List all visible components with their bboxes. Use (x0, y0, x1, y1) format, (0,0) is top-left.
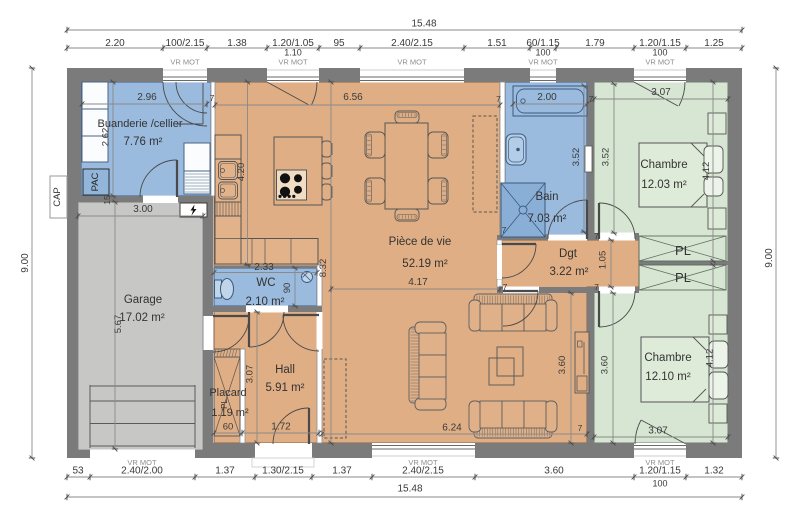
svg-text:60: 60 (223, 422, 234, 433)
svg-text:1.72: 1.72 (271, 422, 291, 433)
svg-text:VR MOT: VR MOT (397, 58, 427, 67)
svg-text:3.52: 3.52 (601, 148, 612, 167)
svg-text:7: 7 (210, 93, 215, 103)
svg-text:VR MOT: VR MOT (408, 458, 438, 467)
svg-text:2.40/2.00: 2.40/2.00 (121, 466, 163, 477)
svg-text:7: 7 (578, 423, 583, 433)
svg-text:1.20/1.15: 1.20/1.15 (639, 466, 681, 477)
svg-text:Dgt: Dgt (559, 248, 578, 260)
svg-text:VR MOT: VR MOT (170, 58, 200, 67)
svg-text:9.00: 9.00 (764, 248, 775, 268)
svg-text:3.00: 3.00 (133, 204, 153, 215)
svg-text:VR MOT: VR MOT (278, 58, 308, 67)
svg-text:100/2.15: 100/2.15 (166, 38, 205, 49)
svg-text:3.52: 3.52 (571, 148, 582, 167)
svg-text:1.19 m²: 1.19 m² (211, 407, 249, 419)
svg-text:6.24: 6.24 (442, 423, 462, 434)
svg-text:6.56: 6.56 (343, 92, 363, 103)
svg-text:1.38: 1.38 (227, 38, 247, 49)
svg-text:VR MOT: VR MOT (127, 458, 157, 467)
svg-text:3.60: 3.60 (600, 356, 611, 375)
svg-text:Hall: Hall (275, 364, 295, 376)
svg-text:VR MOT: VR MOT (528, 58, 558, 67)
svg-text:2.62: 2.62 (101, 128, 112, 147)
svg-text:3.07: 3.07 (651, 87, 671, 98)
svg-text:7: 7 (496, 94, 501, 104)
svg-text:Placard: Placard (209, 387, 246, 399)
svg-text:1.51: 1.51 (487, 38, 507, 49)
svg-text:15: 15 (102, 195, 112, 205)
svg-text:PL: PL (675, 243, 691, 258)
svg-text:1.32: 1.32 (704, 466, 724, 477)
svg-text:52.19 m²: 52.19 m² (402, 258, 448, 270)
svg-text:7: 7 (502, 225, 507, 235)
svg-text:1.05: 1.05 (598, 251, 609, 270)
svg-text:Chambre: Chambre (640, 159, 687, 171)
svg-text:CAP: CAP (52, 187, 63, 207)
svg-text:9.00: 9.00 (20, 253, 31, 273)
svg-text:2.40/2.15: 2.40/2.15 (402, 466, 444, 477)
svg-text:3.60: 3.60 (557, 356, 568, 375)
svg-text:95: 95 (333, 38, 345, 49)
svg-text:17.02 m²: 17.02 m² (119, 312, 165, 324)
svg-text:12.10 m²: 12.10 m² (645, 371, 691, 383)
svg-text:Chambre: Chambre (644, 352, 691, 364)
svg-text:7.03 m²: 7.03 m² (528, 213, 567, 225)
svg-text:100: 100 (652, 479, 667, 489)
svg-text:15.48: 15.48 (411, 19, 436, 30)
svg-text:3.07: 3.07 (648, 426, 668, 437)
svg-text:53: 53 (72, 466, 84, 477)
svg-text:2.20: 2.20 (105, 38, 125, 49)
svg-text:5.91 m²: 5.91 m² (266, 382, 305, 394)
svg-text:2.96: 2.96 (137, 92, 157, 103)
svg-text:PAC: PAC (90, 172, 101, 191)
svg-text:7.76 m²: 7.76 m² (124, 136, 163, 148)
svg-text:2.33: 2.33 (254, 262, 274, 273)
svg-text:90: 90 (282, 283, 293, 294)
svg-text:3.22 m²: 3.22 m² (550, 266, 589, 278)
svg-text:Bain: Bain (535, 191, 558, 203)
svg-text:WC: WC (256, 277, 275, 289)
svg-text:2.10 m²: 2.10 m² (246, 296, 285, 308)
svg-text:4.17: 4.17 (408, 277, 428, 288)
svg-text:1.10: 1.10 (284, 48, 302, 58)
svg-text:4.12: 4.12 (701, 162, 712, 181)
svg-text:100: 100 (535, 48, 550, 58)
svg-text:PL: PL (675, 270, 691, 285)
svg-text:1.37: 1.37 (332, 466, 352, 477)
svg-text:Garage: Garage (124, 294, 162, 306)
svg-text:2.00: 2.00 (537, 92, 557, 103)
svg-text:3.60: 3.60 (544, 466, 564, 477)
svg-text:100: 100 (652, 48, 667, 58)
svg-text:VR MOT: VR MOT (645, 458, 675, 467)
svg-text:7: 7 (589, 94, 594, 104)
svg-text:1.25: 1.25 (704, 38, 724, 49)
svg-text:VR MOT: VR MOT (645, 58, 675, 67)
svg-text:7: 7 (594, 282, 599, 292)
svg-text:1.37: 1.37 (215, 466, 235, 477)
svg-text:Buanderie /cellier: Buanderie /cellier (98, 118, 183, 130)
svg-text:1.30/2.15: 1.30/2.15 (262, 466, 304, 477)
svg-text:2.40/2.15: 2.40/2.15 (391, 38, 433, 49)
svg-text:Pièce de vie: Pièce de vie (389, 236, 452, 248)
svg-text:15.48: 15.48 (397, 484, 422, 495)
svg-text:7: 7 (594, 231, 599, 241)
svg-text:7: 7 (503, 282, 508, 292)
svg-text:12.03 m²: 12.03 m² (641, 179, 687, 191)
svg-text:PL: PL (220, 399, 229, 409)
svg-text:3.07: 3.07 (245, 365, 256, 384)
svg-text:4.12: 4.12 (705, 349, 716, 368)
svg-text:1.79: 1.79 (585, 38, 605, 49)
svg-text:8.32: 8.32 (318, 259, 329, 278)
svg-text:4.20: 4.20 (236, 163, 247, 182)
